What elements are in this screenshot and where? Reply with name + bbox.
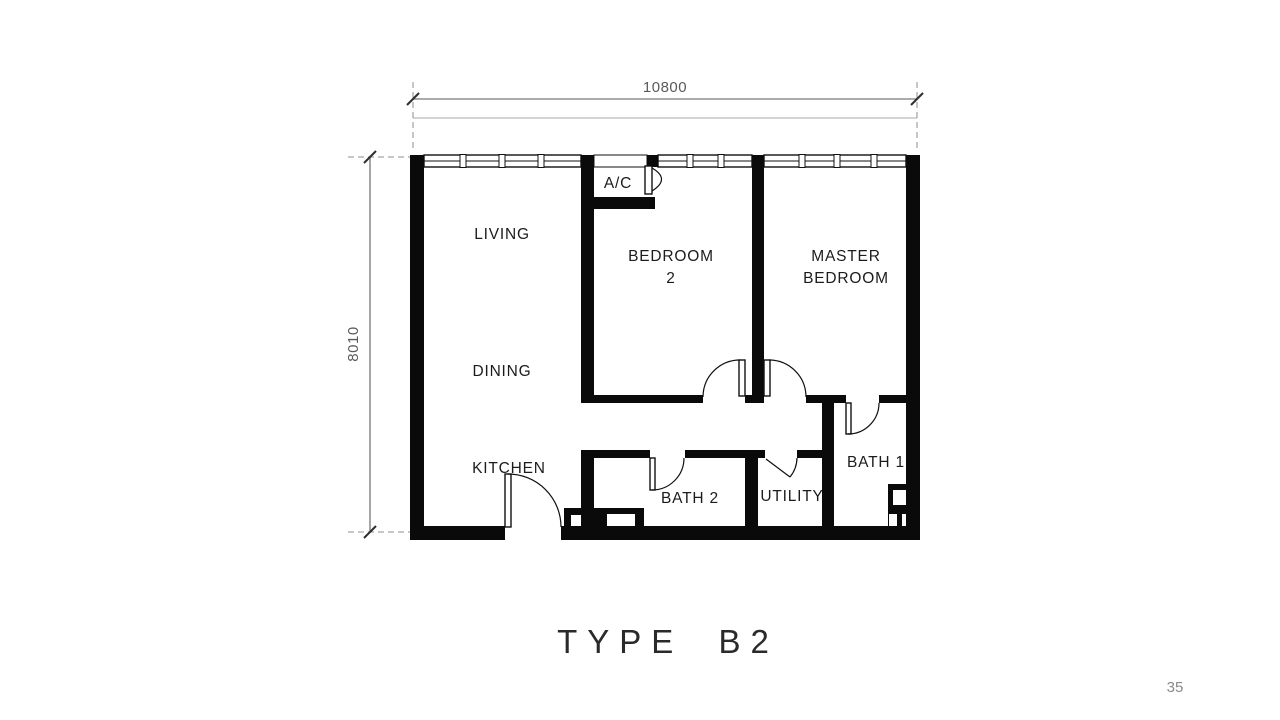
bath1-door-leaf xyxy=(846,403,851,434)
wall-exterior-bottom-right xyxy=(561,526,920,540)
kitchen-door-arc xyxy=(508,474,561,527)
bedroom2-door-arc xyxy=(703,360,740,397)
label-bath1: BATH 1 xyxy=(847,454,905,471)
wall-bath2-utility xyxy=(745,450,758,530)
label-dining: DINING xyxy=(472,363,531,380)
wall-bedroom2-master xyxy=(752,155,764,403)
wall-exterior-left xyxy=(410,155,424,540)
window-mullion xyxy=(687,155,693,168)
floor-plan-drawing: 10800 8010 xyxy=(0,0,1280,720)
dimension-top: 10800 xyxy=(407,79,923,152)
floor-plan-page: 10800 8010 xyxy=(0,0,1280,720)
window-mullion xyxy=(718,155,724,168)
wall-exterior-bottom-left xyxy=(410,526,505,540)
ac-top-panel xyxy=(594,155,647,167)
wall-corridor-post xyxy=(745,395,764,403)
utility-door-arc xyxy=(790,458,797,477)
master-door-arc xyxy=(769,360,806,397)
dimension-width-label: 10800 xyxy=(643,79,687,96)
windows xyxy=(424,155,906,168)
label-utility: UTILITY xyxy=(760,488,823,505)
window-mullion xyxy=(871,155,877,168)
page-number: 35 xyxy=(1167,679,1184,696)
service-shaft-opening xyxy=(889,514,897,528)
wall-living-bedroom2 xyxy=(581,155,594,403)
master-door-leaf xyxy=(764,360,770,396)
wall-corridor-segment xyxy=(581,395,703,403)
walls xyxy=(410,155,920,540)
dimension-left: 8010 xyxy=(345,151,410,538)
wall-bath2-utility-top xyxy=(685,450,765,458)
washer-unit-opening xyxy=(571,515,582,527)
bath2-door-arc xyxy=(652,458,684,490)
label-bedroom2-line2: 2 xyxy=(666,270,675,287)
wall-bath2-top xyxy=(581,450,650,458)
window-mullion xyxy=(799,155,805,168)
kitchen-door-leaf xyxy=(505,474,511,527)
label-bath2: BATH 2 xyxy=(661,490,719,507)
bath2-door-leaf xyxy=(650,458,655,490)
label-ac: A/C xyxy=(604,175,632,192)
wall-post-ac-right xyxy=(647,155,658,167)
ac-door-leaf xyxy=(645,166,652,194)
window-mullion xyxy=(538,155,544,168)
window-mullion xyxy=(460,155,466,168)
wall-ac-bottom xyxy=(581,197,655,209)
wall-bath2-left xyxy=(581,450,594,530)
window-mullion xyxy=(834,155,840,168)
washer-unit-opening xyxy=(607,514,635,527)
wall-utility-bath1 xyxy=(822,395,834,530)
label-kitchen: KITCHEN xyxy=(472,460,546,477)
wall-corridor-segment xyxy=(879,395,906,403)
bedroom2-door-leaf xyxy=(739,360,745,396)
dimension-height-label: 8010 xyxy=(345,326,362,361)
bath1-door-arc xyxy=(848,403,879,434)
plan-title: TYPE B2 xyxy=(557,623,779,660)
ac-door-arc xyxy=(652,168,662,191)
utility-door-leaf xyxy=(766,459,790,477)
window-mullion xyxy=(499,155,505,168)
label-bedroom2-line1: BEDROOM xyxy=(628,248,714,265)
wall-corridor-segment xyxy=(806,395,846,403)
label-master-line2: BEDROOM xyxy=(803,270,889,287)
wall-exterior-right xyxy=(906,155,920,540)
wall-utility-top xyxy=(797,450,822,458)
label-master-line1: MASTER xyxy=(811,248,880,265)
label-living: LIVING xyxy=(474,226,530,243)
